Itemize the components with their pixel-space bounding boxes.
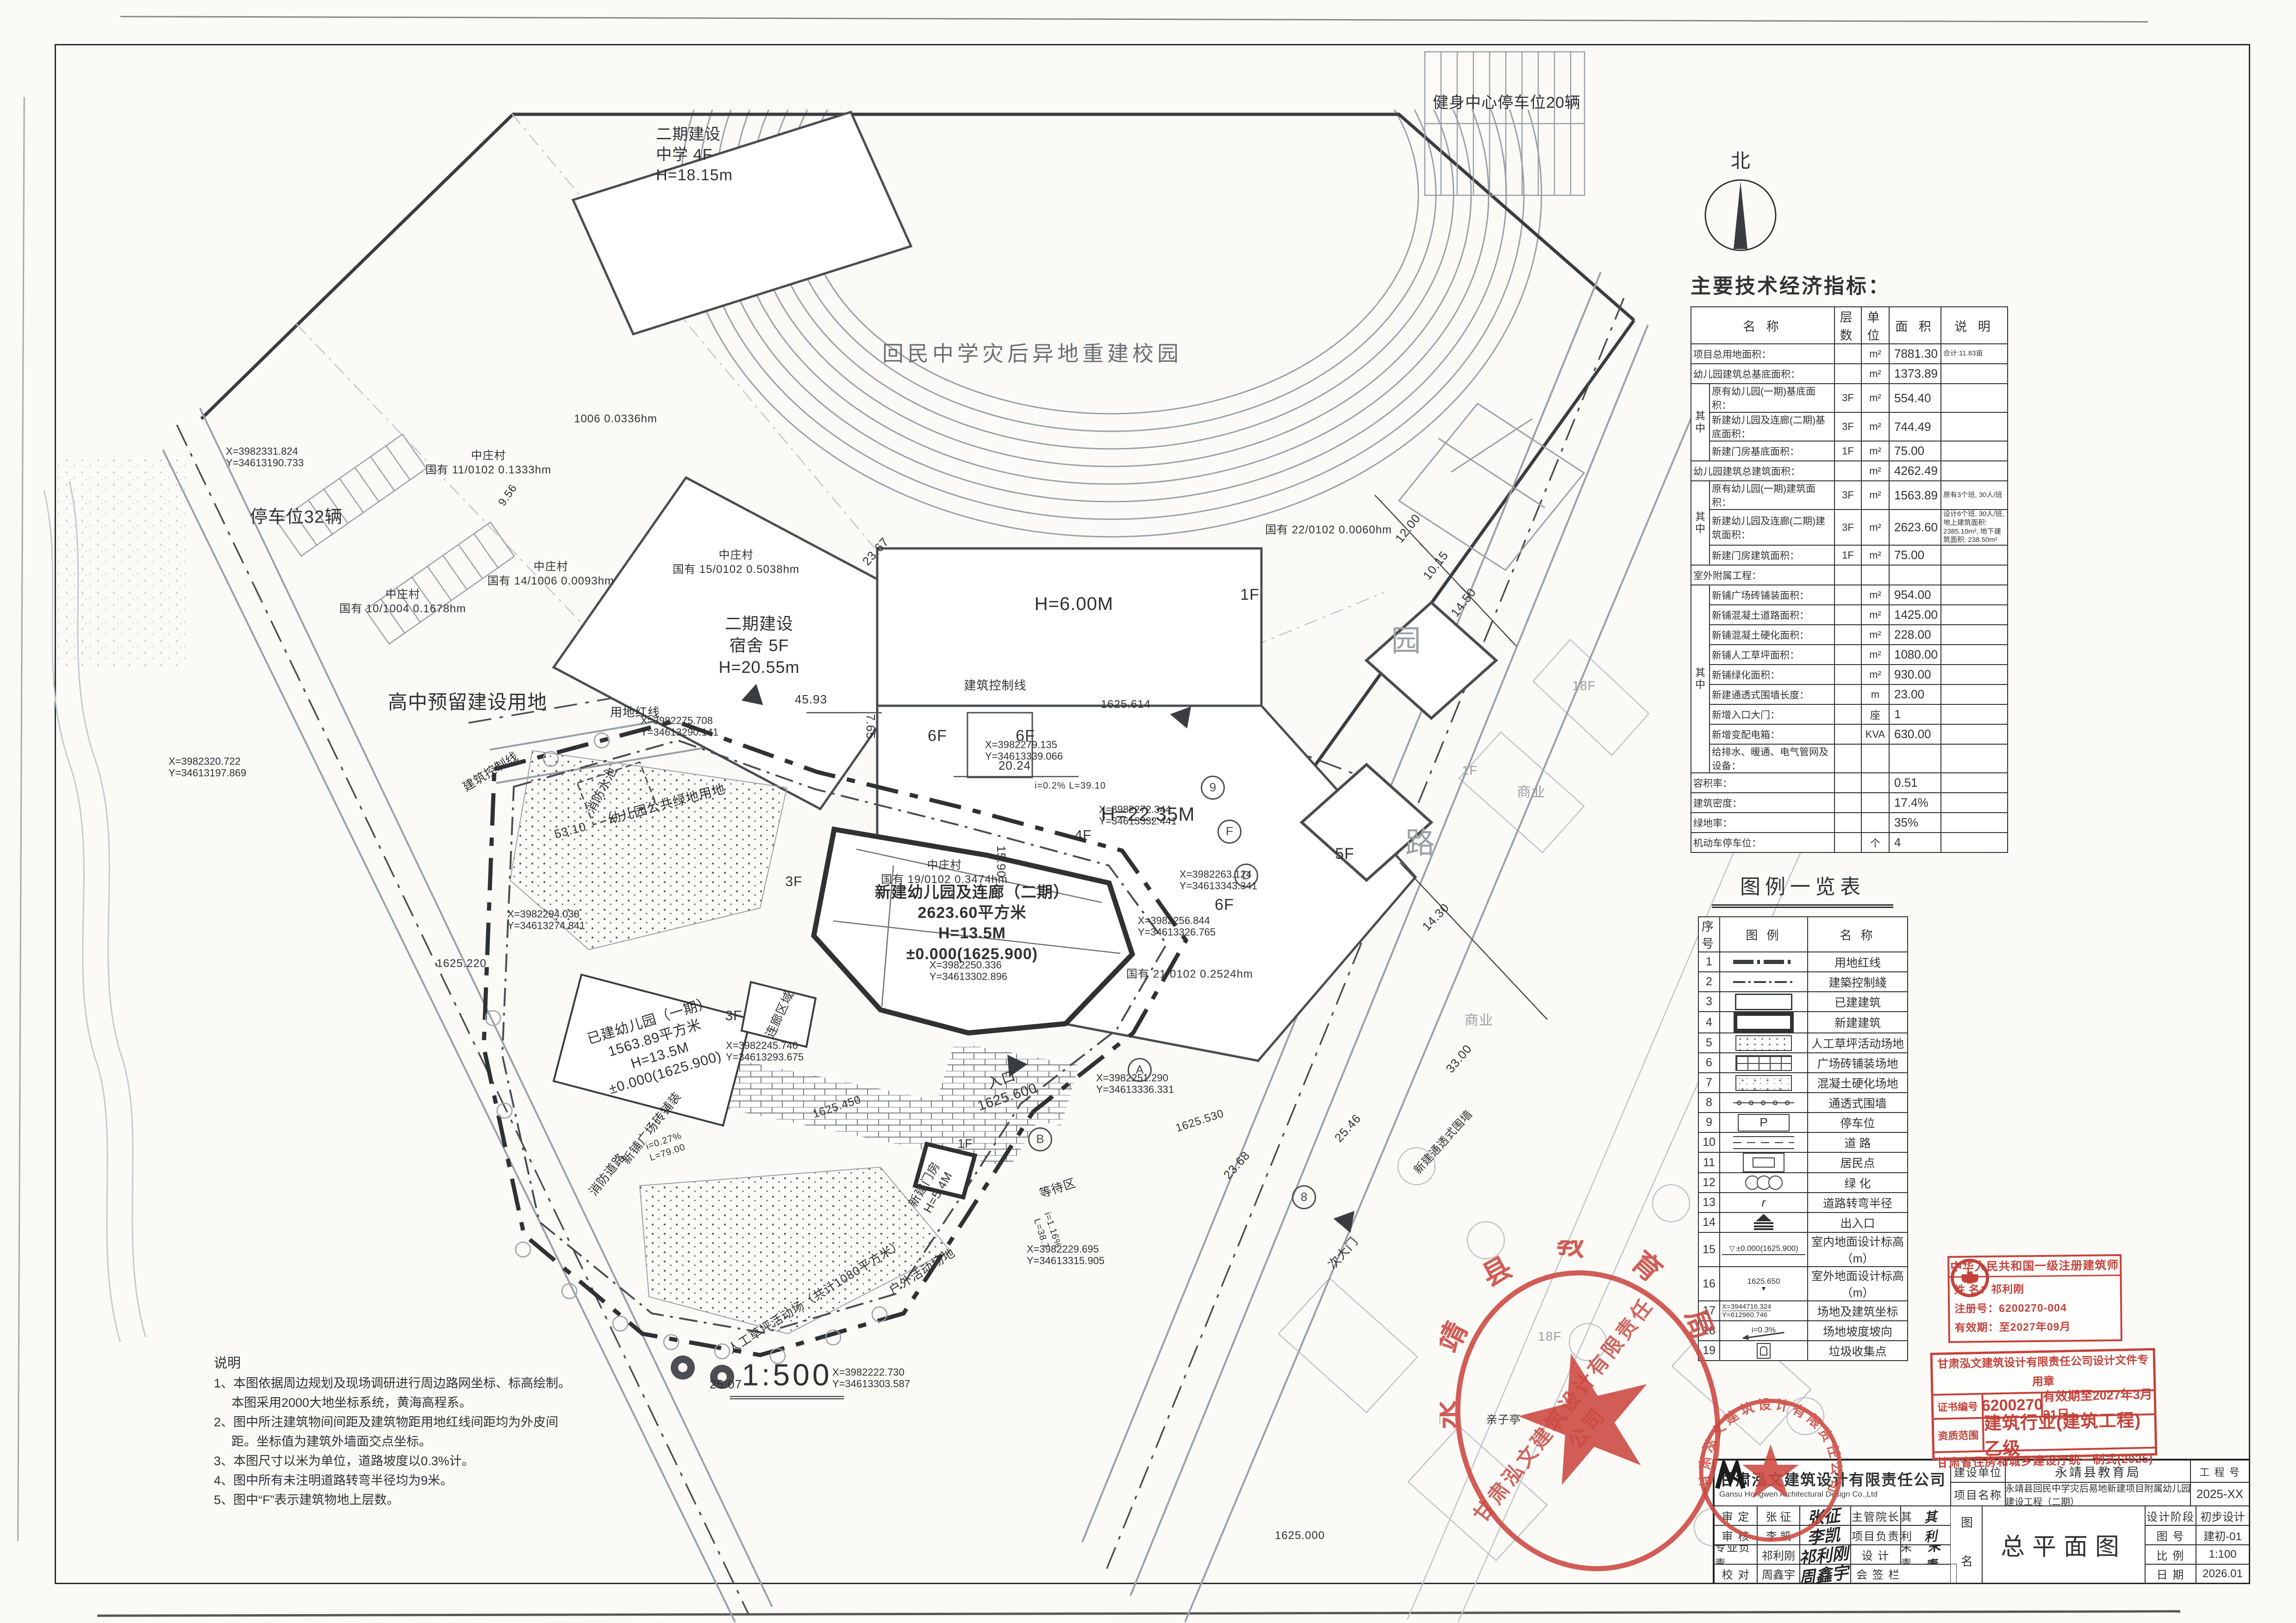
econ-unit: m² [1861,384,1889,412]
coordinate-callout: X=3982331.824 Y=34613190.733 [226,446,304,469]
legend-symbol-cell [1720,1173,1808,1193]
legend-symbol-ctrl-icon [1733,981,1794,983]
econ-note [1941,625,2008,645]
legend-symbol-resident-icon [1743,1153,1784,1172]
drawing-sheet: 回民中学灾后异地重建校园 二期建设 中学 4F H=18.15m 健身中心停车位… [0,0,2296,1623]
econ-unit: m² [1861,364,1889,384]
floors-label: 4F [1074,827,1092,845]
legend-row: 1用地红线 [1698,952,1908,972]
stage-label: 设计阶段 [2145,1505,2196,1526]
axis-bubble: F [1217,820,1242,844]
coordinate-callout: X=3982229.695 Y=34613315.905 [1027,1244,1104,1267]
econ-row: 给排水、暖通、电气管网及设备： [1691,744,2008,773]
legend-no: 5 [1698,1033,1720,1053]
econ-floors: 3F [1834,412,1861,441]
sheet-no-label: 图 号 [2145,1525,2196,1545]
signature: 郑其荣 [1921,1505,1951,1526]
econ-unit: 座 [1861,704,1889,724]
legend-symbol-cell [1720,952,1808,972]
econ-floors [1834,461,1861,481]
econ-group-cell: 其 中 [1691,481,1710,565]
econ-name: 新增变配电箱： [1710,724,1834,744]
econ-floors [1834,585,1861,605]
legend-no: 11 [1698,1152,1720,1173]
building-height-label: H=6.00M [1035,592,1113,616]
econ-group-cell: 其 中 [1691,384,1710,461]
econ-floors: 3F [1834,510,1861,545]
econ-name: 新建门房建筑面积： [1710,545,1834,565]
arch-valid: 至2027年09月 [1999,1320,2071,1333]
econ-row: 新铺混凝土道路面积：m²1425.00 [1691,605,2008,625]
legend-no: 14 [1698,1213,1720,1232]
legend-symbol-newbld-icon [1734,1012,1794,1032]
econ-unit: m² [1861,585,1889,605]
legend-no: 6 [1698,1053,1720,1073]
note-line: 本图采用2000大地坐标系统，黄海高程系。 [214,1393,668,1412]
econ-note [1941,684,2008,704]
legend-no: 12 [1698,1173,1720,1193]
arch-valid-label: 有效期： [1955,1321,1999,1334]
note-line: 1、本图依据周边规划及现场调研进行周边路网坐标、标高绘制。 [214,1374,668,1393]
legend-name: 通透式围墙 [1808,1093,1908,1113]
econ-floors [1834,605,1861,625]
econ-name: 新增入口大门： [1710,704,1834,724]
note-line: 5、图中“F”表示建筑物地上层数。 [214,1490,668,1510]
floors-label: 18F [1572,678,1596,694]
econ-note: 合计:11.83亩 [1941,344,2008,364]
date-value: 2026.01 [2196,1564,2250,1584]
designer-name: 朱 青 朱青 [1900,1544,1951,1565]
floors-label: 6F [1215,895,1234,915]
axis-bubble: B [1028,1127,1052,1151]
notes-title: 说明 [214,1352,668,1372]
econ-name: 项目总用地面积： [1691,344,1834,364]
econ-area [1889,565,1941,585]
slope-label: i=0.2% L=39.10 [1035,780,1106,792]
econ-name: 容积率： [1691,773,1834,793]
legend-symbol-cell [1720,1073,1808,1093]
designer-label: 设 计 [1850,1544,1901,1565]
econ-name: 新铺广场砖铺装面积： [1710,585,1834,605]
legend-symbol-parking-icon: P [1738,1114,1790,1132]
legend-symbol-cell [1720,1012,1808,1033]
econ-area: 23.00 [1889,684,1941,704]
legend-no: 9 [1698,1113,1720,1132]
countersign-label: 会 签 栏 [1850,1564,1957,1584]
econ-unit: m² [1861,344,1889,364]
econ-area: 1373.89 [1889,364,1941,384]
legend-row: 11居民点 [1698,1152,1908,1173]
econ-floors [1834,645,1861,665]
econ-note [1941,461,2008,481]
legend-symbol-lawn-icon [1735,1035,1792,1051]
gym-parking-label: 健身中心停车位20辆 [1433,93,1581,113]
west-parking-label: 停车位32辆 [250,506,343,529]
econ-name: 幼儿园建筑总建筑面积： [1691,461,1834,481]
sheet-name-value: 总平面图 [1982,1505,2146,1584]
legend-symbol-cell [1720,1093,1808,1113]
econ-row: 新建幼儿园及连廊(二期)基底面积：3Fm²744.49 [1691,412,2008,441]
econ-area: 17.4% [1889,793,1941,813]
legend-symbol-cell: P [1720,1113,1808,1132]
econ-area: 228.00 [1889,625,1941,645]
signature: 周鑫宇 [1799,1564,1851,1584]
econ-name: 新建幼儿园及连廊(二期)基底面积： [1710,412,1834,441]
econ-name: 幼儿园建筑总基底面积： [1691,364,1834,384]
legend-name: 人工草坪活动场地 [1808,1033,1908,1053]
parcel-label: 国有 22/0102 0.0060hm [1265,522,1392,537]
note-line: 2、图中所注建筑物间间距及建筑物距用地红线间距均为外皮间 [214,1412,668,1432]
legend-no: 13 [1698,1193,1720,1213]
econ-unit: m [1861,684,1889,704]
note-line: 3、本图尺寸以米为单位，道路坡度以0.3%计。 [214,1451,668,1471]
econ-area: 744.49 [1889,412,1941,441]
econ-unit: m² [1861,412,1889,441]
econ-area: 954.00 [1889,585,1941,605]
new-kindergarten-label: 新建幼儿园及连廊（二期） 2623.60平方米 H=13.5M ±0.000(1… [875,883,1069,964]
econ-row: 其 中原有幼儿园(一期)基底面积：3Fm²554.40 [1691,384,2008,412]
floors-label: 1F [958,1136,973,1152]
econ-unit: m² [1861,510,1889,545]
econ-floors [1834,704,1861,724]
econ-note [1941,384,2008,412]
legend-header: 图 例 [1720,917,1808,952]
architect-seal-icon [1949,1257,1990,1299]
econ-note [1941,744,2008,773]
legend-symbol-redline-icon [1733,960,1794,964]
econ-floors [1834,744,1861,773]
econ-name: 新建幼儿园及连廊(二期)建筑面积： [1710,510,1834,545]
legend-row: 6广场砖铺装场地 [1698,1053,1908,1073]
drawing-scale: 1:500 [730,1357,844,1399]
econ-note [1941,773,2008,793]
econ-header: 单位 [1861,307,1889,344]
cert-no-label: 证书编号 [1934,1395,1984,1418]
econ-floors: 1F [1834,441,1861,461]
legend-name: 新建建筑 [1808,1012,1908,1033]
econ-floors [1834,813,1861,833]
econ-note [1941,704,2008,724]
floors-label: 3F [725,1007,742,1025]
arch-reg: 6200270-004 [1999,1301,2067,1314]
middle-school-building [573,112,911,334]
floors-label: 6F [928,726,947,746]
econ-unit: m² [1861,481,1889,510]
legend-symbol-radius-icon: r [1722,1195,1805,1210]
legend-symbol-brick-icon [1735,1055,1792,1071]
legend-symbol-existing-icon [1735,994,1792,1010]
dimension-label: 20.24 [998,758,1031,774]
dormitory-label: 二期建设 宿舍 5F H=20.55m [718,613,799,678]
sheet-name-label: 图 名 [1950,1505,1983,1584]
cert-scope: 建筑行业(建筑工程)乙级 [1984,1415,2155,1450]
econ-title: 主要技术经济指标： [1691,269,2007,299]
econ-area: 4262.49 [1889,461,1941,481]
econ-floors [1834,364,1861,384]
designer-text: 朱 青 [1901,1544,1924,1565]
econ-note [1941,645,2008,665]
econ-floors: 1F [1834,545,1861,565]
econ-unit: m² [1861,645,1889,665]
legend-row: 5人工草坪活动场地 [1698,1033,1908,1053]
legend-symbol-cell [1720,992,1808,1012]
reserved-land-label: 高中预留建设用地 [388,690,547,715]
econ-header: 面 积 [1889,307,1941,344]
gym-parking-grid [1425,52,1585,195]
econ-row: 新增变配电箱：KVA630.00 [1691,724,2008,744]
legend-name: 居民点 [1808,1152,1908,1173]
econ-table: 名 称 层数 单位 面 积 说 明 项目总用地面积：m²7881.30合计:11… [1691,306,2008,853]
project-lead-name: 祁利刚 祁利刚 [1900,1525,1951,1545]
legend-header: 序号 [1698,917,1720,952]
control-line-label: 建筑控制线 [964,678,1026,694]
middle-school-label: 二期建设 中学 4F H=18.15m [656,124,733,186]
econ-row: 幼儿园建筑总建筑面积：m²4262.49 [1691,461,2008,481]
coordinate-callout: X=3982222.730 Y=34613303.587 [832,1367,910,1390]
legend-symbol-green-icon [1722,1175,1805,1190]
legend-no: 1 [1698,952,1720,972]
parcel-label: 中庄村 国有 15/0102 0.5038hm [673,548,799,577]
note-line: 距。坐标值为建筑外墙面交点坐标。 [214,1432,668,1451]
legend-name: 停车位 [1808,1113,1908,1132]
coordinate-callout: X=3982275.708 Y=34613290.141 [641,715,718,739]
legend-symbol-road-icon [1733,1136,1794,1149]
campus-name-label: 回民中学灾后异地重建校园 [882,340,1182,368]
coordinate-callout: X=3982256.844 Y=34613326.765 [1138,915,1216,939]
econ-note [1941,793,2008,813]
econ-note: 原有3个班, 30人/班 [1941,481,2008,510]
legend-symbol-trash-icon [1757,1343,1771,1359]
econ-unit: KVA [1861,724,1889,744]
north-arrow: 北 [1690,139,1791,268]
econ-unit: m² [1861,461,1889,481]
cert-scope-label: 资质范围 [1934,1419,1984,1451]
economic-indicators: 主要技术经济指标： 名 称 层数 单位 面 积 说 明 项目总用地面积：m²78… [1691,269,2007,853]
director-name: 郑其荣 郑其荣 [1900,1505,1951,1526]
econ-unit [1861,744,1889,773]
econ-row: 建筑密度：17.4% [1691,793,2008,813]
project-lead-label: 项目负责 [1850,1525,1901,1545]
econ-header-row: 名 称 层数 单位 面 积 说 明 [1691,307,2008,344]
econ-row: 新建通透式围墙长度：m23.00 [1691,684,2008,704]
econ-note [1941,364,2008,384]
legend-name: 室内地面设计标高（m） [1808,1232,1908,1267]
econ-row: 机动车停车位：个4 [1691,833,2008,852]
econ-note [1941,665,2008,684]
econ-unit: m² [1861,605,1889,625]
econ-row: 其 中原有幼儿园(一期)建筑面积：3Fm²1563.89原有3个班, 30人/班 [1691,481,2008,510]
econ-note [1941,412,2008,441]
econ-name: 绿地率： [1691,813,1834,833]
econ-area: 4 [1889,833,1941,852]
econ-unit [1861,813,1889,833]
econ-name: 机动车停车位： [1691,833,1834,852]
north-label: 北 [1731,150,1750,172]
legend-row: 10道 路 [1698,1132,1908,1152]
axis-bubble: 9 [1201,776,1225,800]
econ-floors [1834,344,1861,364]
econ-floors [1834,625,1861,645]
legend-no: 4 [1698,1012,1720,1033]
econ-group-cell: 其 中 [1691,585,1710,773]
econ-unit: m² [1861,625,1889,645]
legend-name: 道 路 [1808,1132,1908,1152]
econ-row: 室外附属工程： [1691,565,2008,585]
legend-name: 垃圾收集点 [1808,1341,1908,1361]
date-label: 日 期 [2145,1564,2196,1584]
dimension-label: 25.07 [710,1377,742,1393]
econ-unit [1861,773,1889,793]
econ-unit: 个 [1861,833,1889,852]
legend-row: 4新建建筑 [1698,1012,1908,1033]
econ-floors [1834,724,1861,744]
north-needle-icon [1734,181,1747,249]
econ-name: 原有幼儿园(一期)基底面积： [1710,384,1834,412]
legend-no: 7 [1698,1073,1720,1093]
legend-symbol-cell [1720,1033,1808,1053]
coordinate-callout: X=3982272.344 Y=34613332.441 [1099,804,1177,827]
floors-label: 3F [785,873,802,891]
project-lead-text: 祁利刚 [1901,1525,1922,1545]
econ-floors [1834,793,1861,813]
econ-floors: 3F [1834,384,1861,412]
school-main-upper [877,548,1261,706]
legend-row: 14出入口 [1698,1213,1908,1232]
econ-row: 项目总用地面积：m²7881.30合计:11.83亩 [1691,344,2008,364]
econ-area: 75.00 [1889,441,1941,461]
econ-note [1941,724,2008,744]
econ-note [1941,813,2008,833]
terrain-stream [44,458,191,1342]
econ-row: 新建幼儿园及连廊(二期)建筑面积：3Fm²2623.60设计6个班, 30人/班… [1691,510,2008,545]
signature: 朱青 [1924,1544,1951,1565]
parcel-label: 1006 0.0336hm [574,411,657,426]
econ-name: 新铺混凝土道路面积： [1710,605,1834,625]
econ-note [1941,441,2008,461]
econ-row: 容积率：0.51 [1691,773,2008,793]
legend-name: 场地及建筑坐标 [1808,1301,1908,1321]
econ-header: 层数 [1834,307,1861,344]
econ-note [1941,565,2008,585]
axis-bubble: 8 [1292,1185,1316,1209]
legend-name: 建築控制綫 [1808,972,1908,992]
elevation-label: 1625.220 [437,956,487,970]
legend-title: 图例一览表 [1712,870,1893,908]
legend-header: 名 称 [1808,917,1908,952]
econ-area: 1 [1889,704,1941,724]
legend-name: 场地坡度坡向 [1808,1321,1908,1341]
job-number-value: 2025-XX [2190,1482,2250,1506]
coordinate-callout: X=3982294.038 Y=34613274.841 [507,908,585,932]
design-certificate-stamp: 甘肃泓文建筑设计有限责任公司设计文件专用章 证书编号 6200270 有效期至2… [1930,1348,2158,1460]
econ-note [1941,545,2008,565]
legend-row: 7混凝土硬化场地 [1698,1073,1908,1093]
econ-area: 930.00 [1889,665,1941,684]
econ-unit: m² [1861,441,1889,461]
small-building-1f-a [1366,603,1496,718]
econ-area: 1425.00 [1889,605,1941,625]
legend-symbol-cell [1720,1213,1808,1232]
legend-symbol-fence-icon [1733,1100,1794,1106]
econ-unit [1861,565,1889,585]
design-company-round-stamp: 甘肃泓文建筑设计有限责任公司 [1692,1391,1849,1548]
legend-symbol-text: r [1762,1195,1766,1210]
notes-block: 说明 1、本图依据周边规划及现场调研进行周边路网坐标、标高绘制。 本图采用200… [214,1352,668,1510]
signature: 祁利刚 [1921,1525,1951,1545]
director-name-text: 郑其荣 [1901,1505,1922,1526]
legend-row: 8通透式围墙 [1698,1093,1908,1113]
legend-row: 2建築控制綫 [1698,972,1908,992]
legend-name: 用地红线 [1808,952,1908,972]
legend-symbol-entrance-icon [1722,1214,1805,1231]
floors-label: 1F [1462,762,1478,779]
econ-row: 新建门房建筑面积：1Fm²75.00 [1691,545,2008,565]
stage-value: 初步设计 [2196,1505,2250,1526]
econ-area: 554.40 [1889,384,1941,412]
legend-row: 13r道路转弯半径 [1698,1193,1908,1213]
registered-architect-stamp: 中华人民共和国一级注册建筑师 姓 名：祁利刚 注册号：6200270-004 有… [1947,1254,2122,1343]
econ-row: 新铺人工草坪面积：m²1080.00 [1691,645,2008,665]
econ-floors: 3F [1834,481,1861,510]
econ-name: 新建通透式围墙长度： [1710,684,1834,704]
econ-row: 新铺绿化面积：m²930.00 [1691,665,2008,684]
econ-area: 0.51 [1889,773,1941,793]
coordinate-callout: X=3982320.722 Y=34613197.869 [168,756,246,779]
legend-symbol-cell [1720,1132,1808,1152]
legend-name: 已建建筑 [1808,992,1908,1012]
econ-unit [1861,793,1889,813]
econ-name: 新建门房基底面积： [1710,441,1834,461]
econ-name: 室外附属工程： [1691,565,1834,585]
econ-row: 幼儿园建筑总基底面积：m²1373.89 [1691,364,2008,384]
econ-note: 设计6个班, 30人/班, 地上建筑面积: 2385.10m², 地下建筑面积:… [1941,510,2008,545]
project-name-value: 永靖县回民中学灾后易地新建项目附属幼儿园建设工程（二期） [2005,1482,2191,1506]
legend-header-row: 序号 图 例 名 称 [1698,917,1908,952]
econ-area: 7881.30 [1889,344,1941,364]
econ-name: 给排水、暖通、电气管网及设备： [1710,744,1834,773]
econ-note [1941,833,2008,852]
legend-no: 8 [1698,1093,1720,1113]
econ-row: 新铺混凝土硬化面积：m²228.00 [1691,625,2008,645]
legend-name: 混凝土硬化场地 [1808,1073,1908,1093]
legend-no: 10 [1698,1132,1720,1152]
econ-name: 新铺人工草坪面积： [1710,645,1834,665]
legend-symbol-cell [1720,1053,1808,1073]
legend-no: 2 [1698,972,1720,992]
parcel-label: 中庄村 国有 11/0102 0.1333hm [425,448,551,477]
legend-symbol-cell: r [1720,1193,1808,1213]
econ-floors [1834,665,1861,684]
entrance-triangle-icon [1756,1214,1772,1221]
road-name-char: 路 [1405,824,1435,862]
scale-row-value: 1:100 [2196,1544,2250,1565]
econ-area: 630.00 [1889,724,1941,744]
legend-name: 道路转弯半径 [1808,1193,1908,1213]
econ-note [1941,605,2008,625]
axis-bubble: D [1234,864,1258,888]
econ-name: 原有幼儿园(一期)建筑面积： [1710,481,1834,510]
sheet-no-value: 建初-01 [2196,1525,2250,1545]
legend-symbol-text: P [1759,1115,1767,1130]
econ-area [1889,744,1941,773]
elevation-label: 1625.614 [1101,697,1151,711]
coordinate-callout: X=3982245.746 Y=34613293.675 [726,1040,804,1063]
elevation-label: 1625.000 [1275,1528,1325,1542]
axis-bubble: A [1128,1058,1152,1082]
legend-row: 12绿 化 [1698,1173,1908,1193]
econ-unit: m² [1861,665,1889,684]
project-name-label: 项目名称 [1950,1482,2006,1506]
